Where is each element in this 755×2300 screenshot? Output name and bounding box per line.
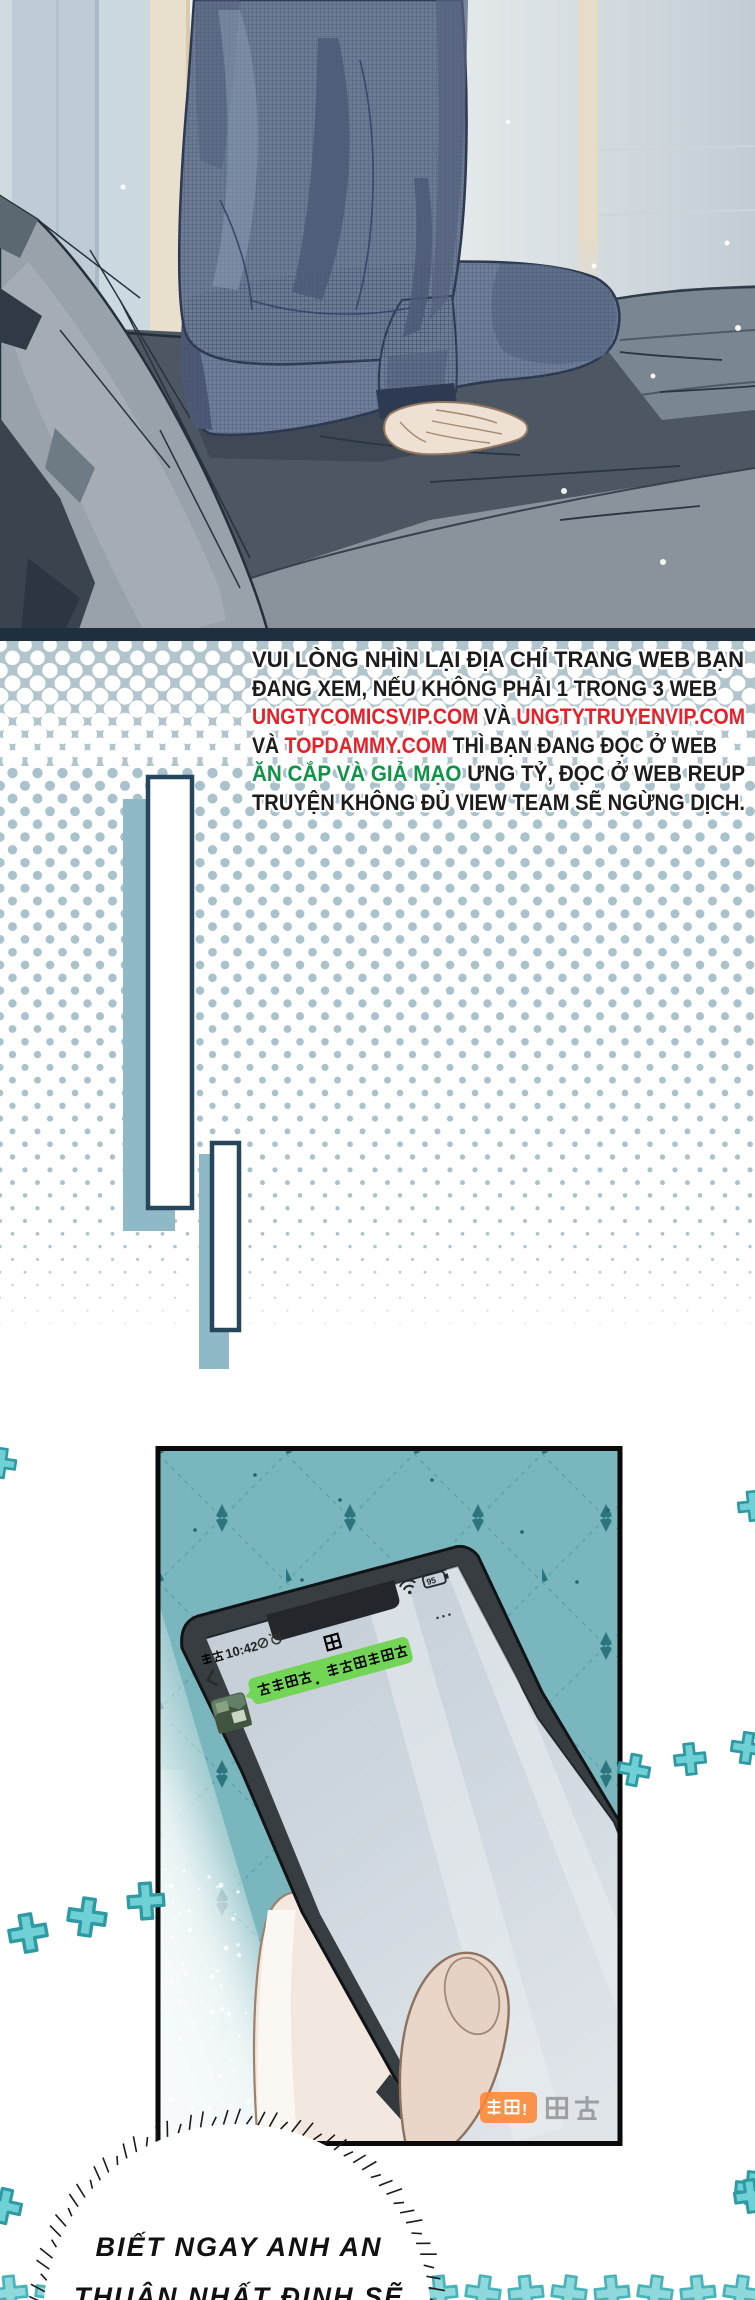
svg-text:!: ! xyxy=(522,2102,527,2119)
